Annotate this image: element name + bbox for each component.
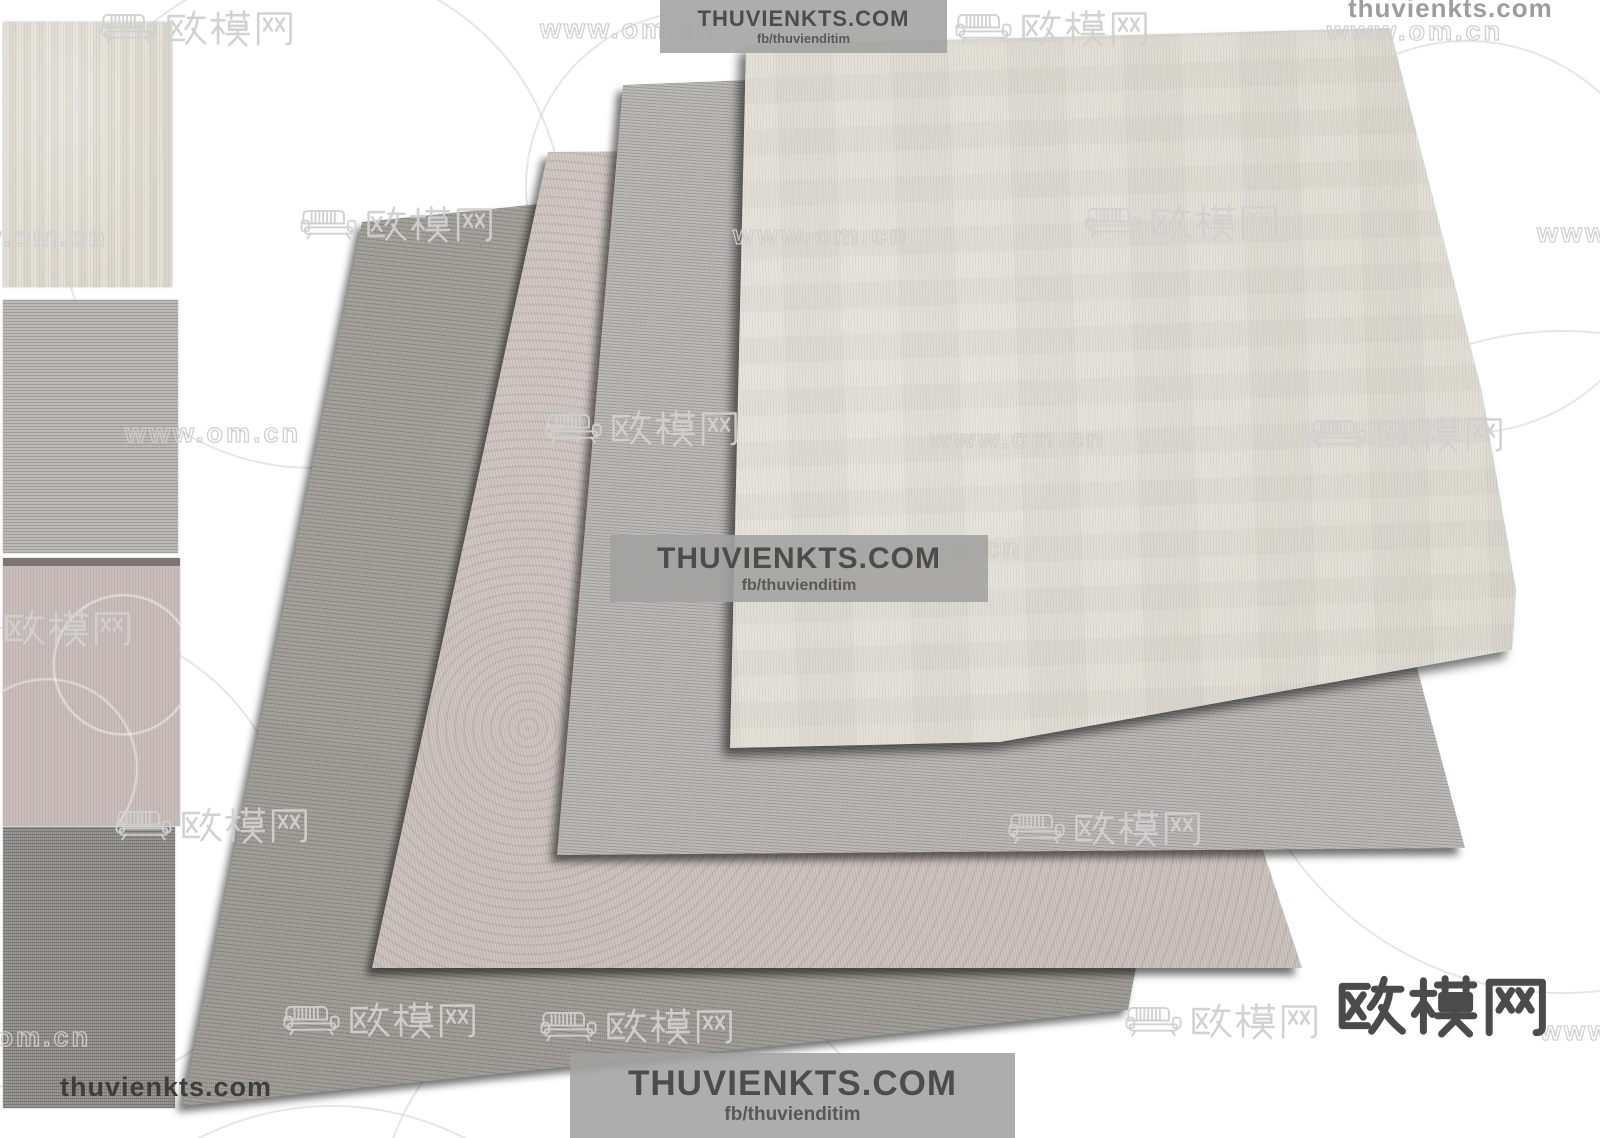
- omw-brand-logo: 欧模网: [1338, 970, 1548, 1047]
- watermark-banner-top: THUVIENKTS.COM fb/thuvienditim: [660, 0, 947, 53]
- banner-subtitle: fb/thuvienditim: [660, 31, 947, 47]
- banner-title: THUVIENKTS.COM: [570, 1064, 1015, 1104]
- banner-title: THUVIENKTS.COM: [610, 542, 988, 577]
- banner-subtitle: fb/thuvienditim: [570, 1104, 1015, 1127]
- banner-subtitle: fb/thuvienditim: [610, 576, 988, 595]
- site-name-top-right: thuvienkts.com: [1348, 0, 1553, 24]
- banner-title: THUVIENKTS.COM: [660, 6, 947, 31]
- watermark-banner-center: THUVIENKTS.COM fb/thuvienditim: [610, 535, 988, 602]
- watermark-banner-bottom: THUVIENKTS.COM fb/thuvienditim: [570, 1053, 1015, 1138]
- product-render-canvas: 欧模网 欧模网 欧模网 欧模网 欧模网 欧模网 欧模网 欧模网 欧模网 欧模网 …: [0, 0, 1600, 1138]
- site-name-bottom-left: thuvienkts.com: [60, 1072, 272, 1103]
